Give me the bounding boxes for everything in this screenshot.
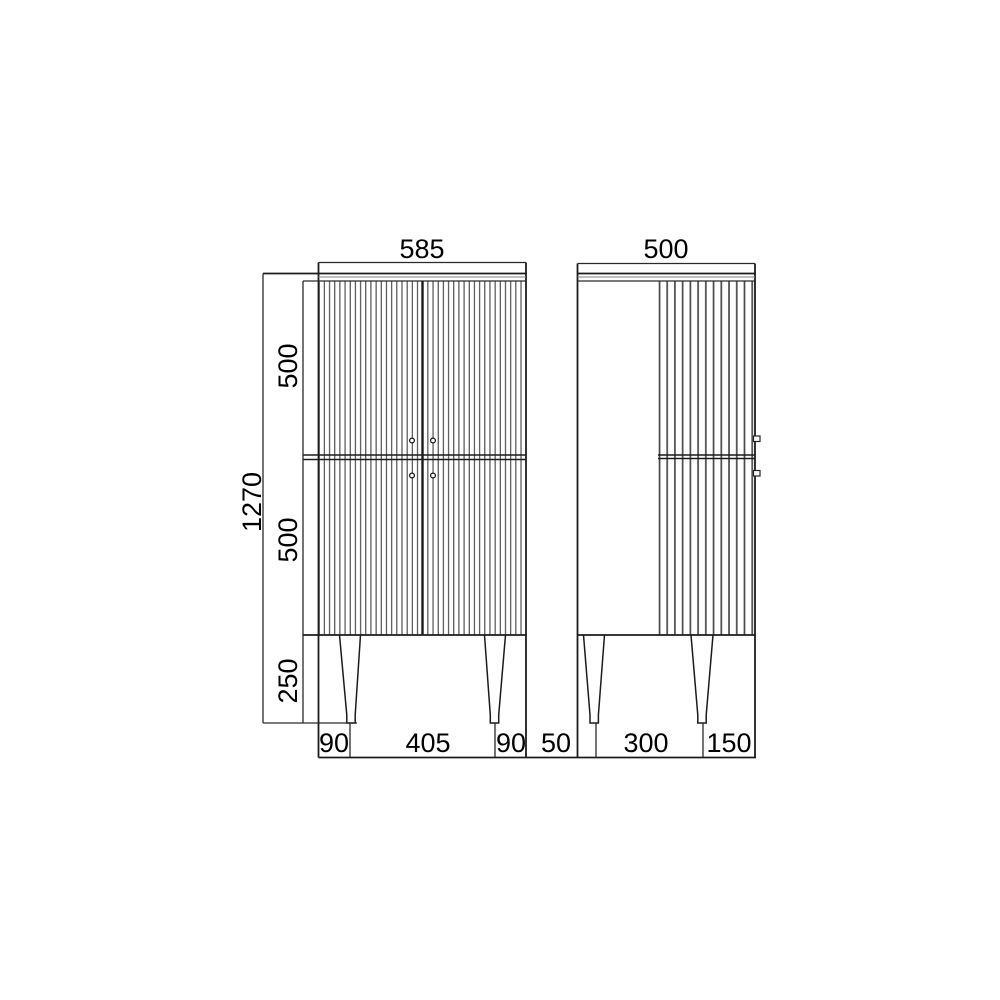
- side-knob-lower: [754, 471, 761, 477]
- label-front-bottom-left: 90: [319, 728, 349, 758]
- front-right-leg: [485, 635, 506, 723]
- side-knob-upper: [754, 436, 761, 442]
- front-knob-lower-left: [410, 473, 415, 478]
- side-back-leg: [584, 635, 605, 723]
- label-side-bottom-back: 50: [541, 728, 571, 758]
- front-knob-lower-right: [431, 473, 436, 478]
- front-knob-upper-left: [410, 438, 415, 443]
- technical-drawing-canvas: 585 500 1270 500 500 250 90 405 90 50 30…: [0, 0, 1000, 1000]
- label-front-width: 585: [399, 234, 444, 264]
- label-side-bottom-span: 300: [623, 728, 668, 758]
- label-upper-door-height: 500: [273, 343, 303, 388]
- side-view: [578, 264, 761, 758]
- label-total-height: 1270: [237, 472, 267, 532]
- label-side-depth: 500: [643, 234, 688, 264]
- label-side-bottom-front: 150: [706, 728, 751, 758]
- front-knob-upper-right: [431, 438, 436, 443]
- label-front-bottom-right: 90: [496, 728, 526, 758]
- front-left-leg: [340, 635, 361, 723]
- label-front-bottom-span: 405: [405, 728, 450, 758]
- side-front-leg: [691, 635, 713, 723]
- label-lower-door-height: 500: [273, 517, 303, 562]
- label-leg-height: 250: [273, 658, 303, 703]
